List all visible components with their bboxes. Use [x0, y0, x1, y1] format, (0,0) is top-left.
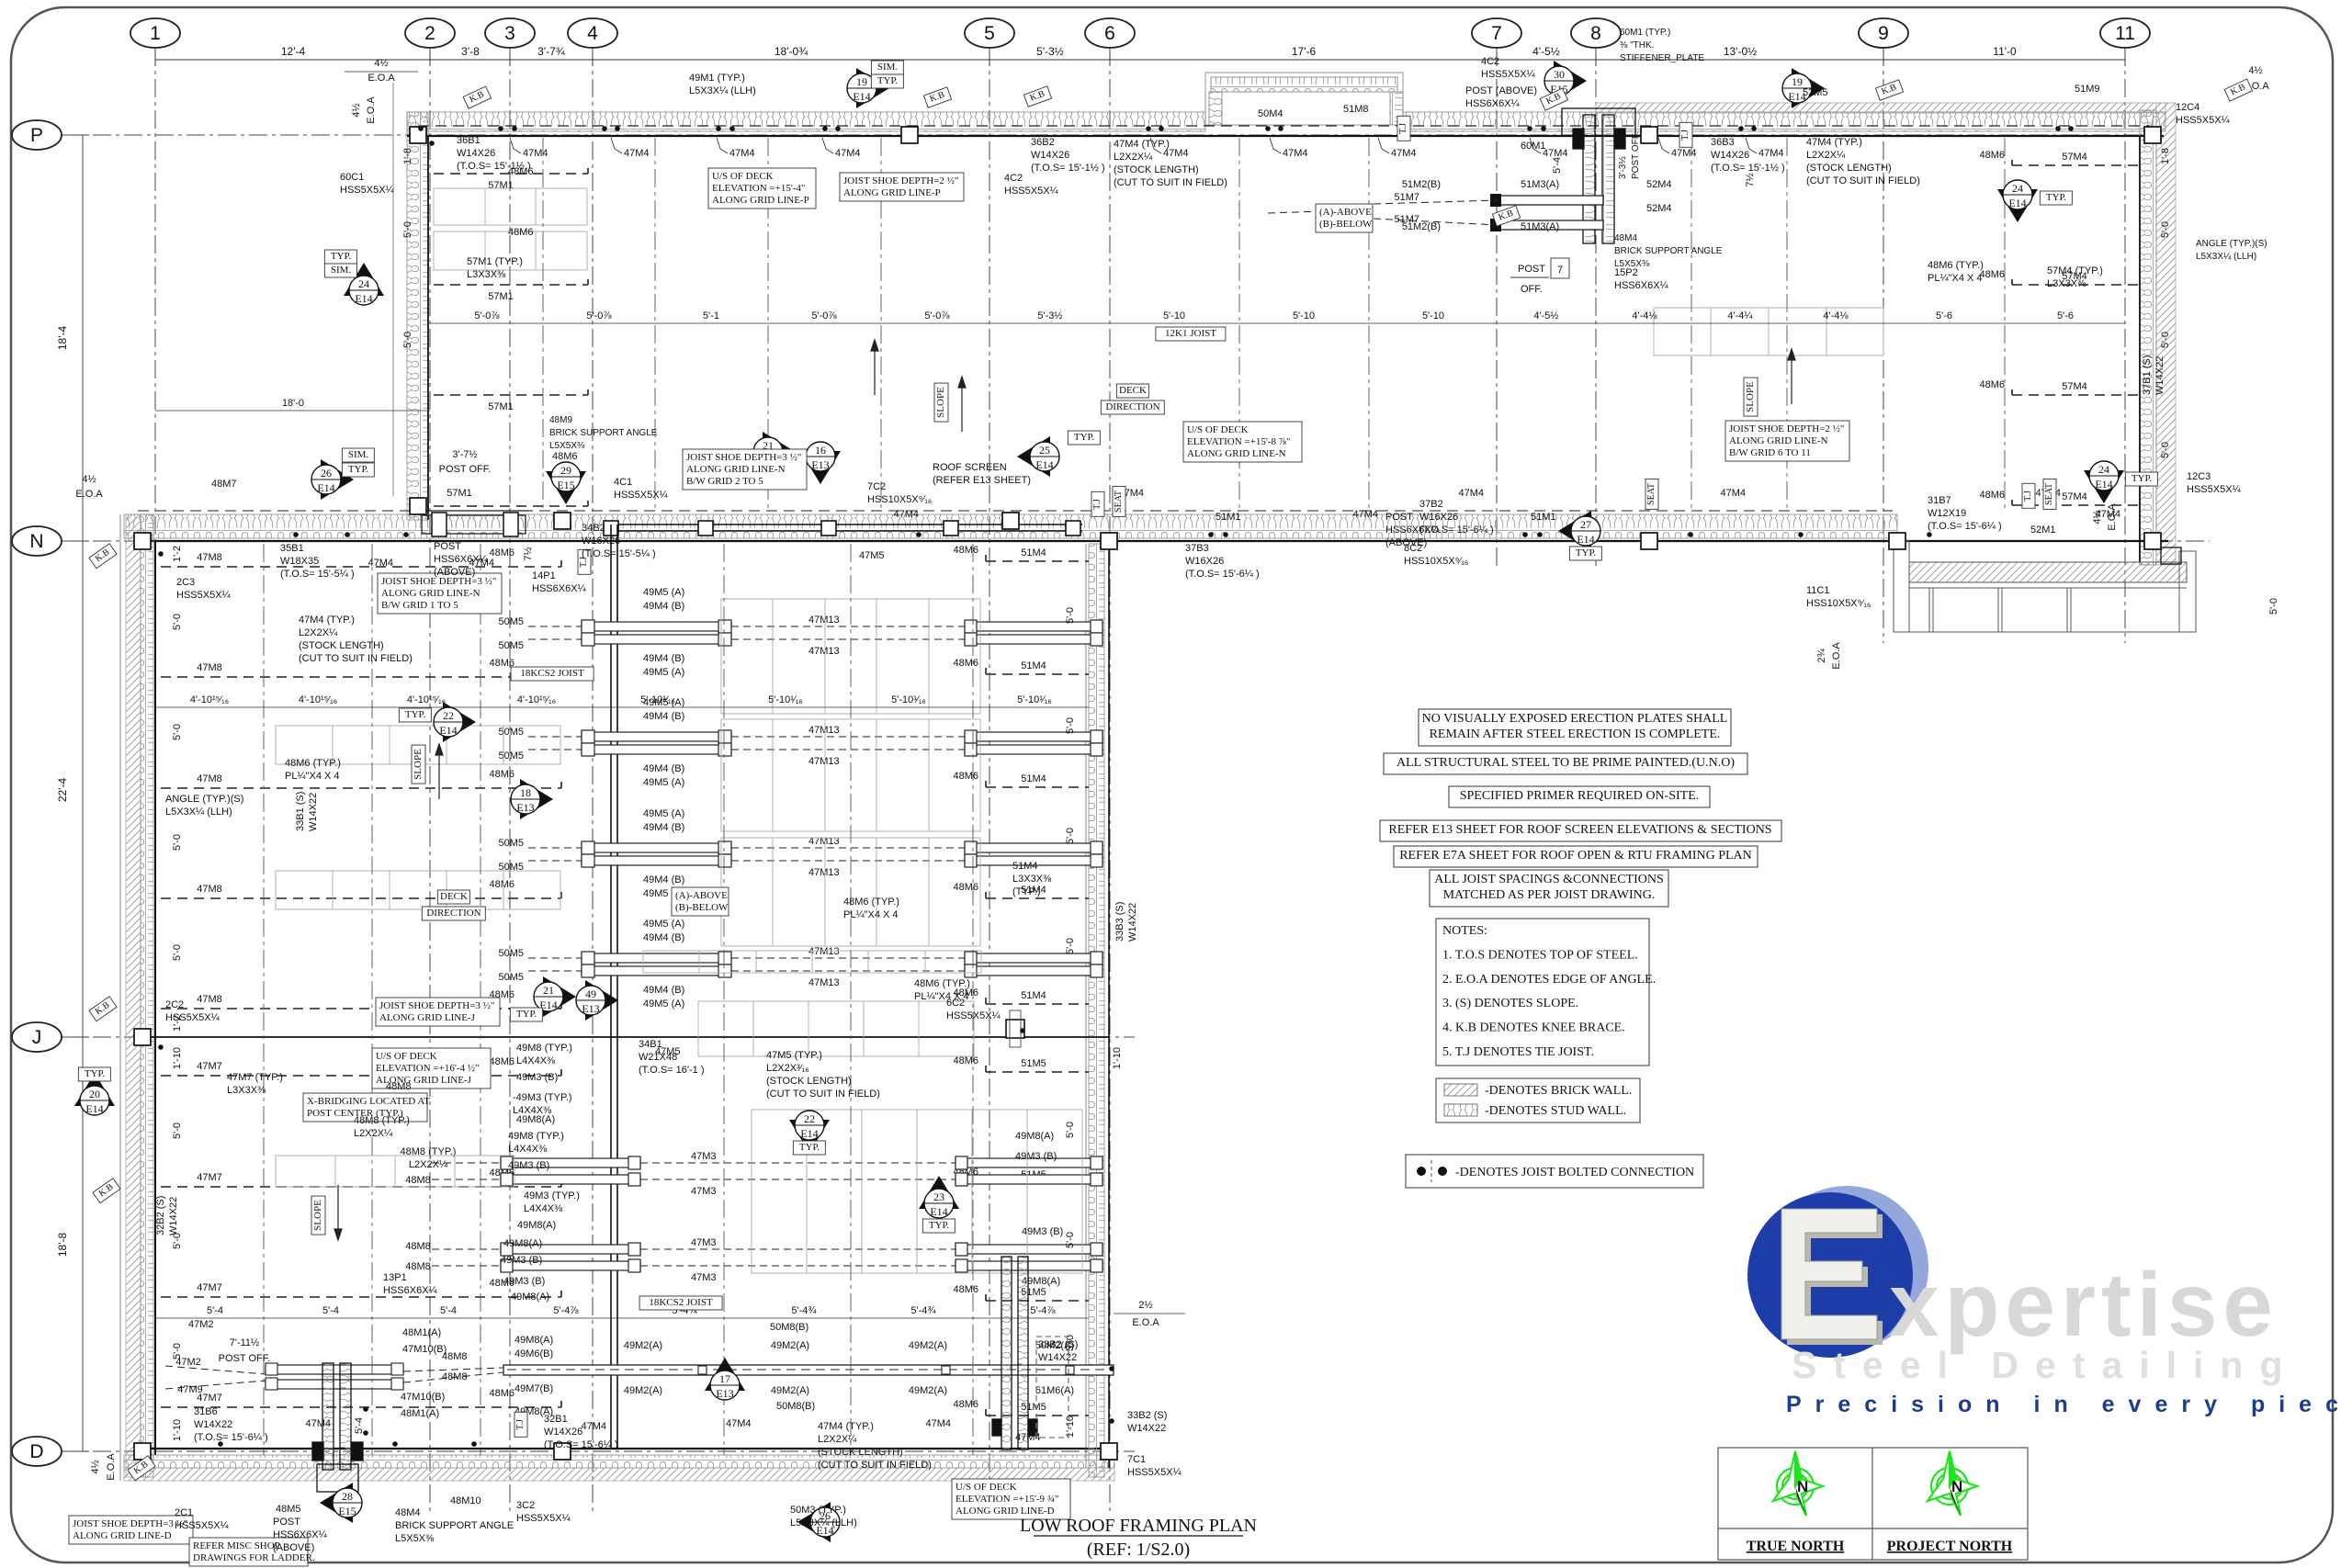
svg-text:57M1: 57M1 — [488, 180, 514, 191]
svg-text:(T.O.S= 15'-6¼ ): (T.O.S= 15'-6¼ ) — [194, 1432, 268, 1443]
svg-text:5'-0: 5'-0 — [1065, 607, 1076, 624]
svg-text:47M4: 47M4 — [1671, 148, 1697, 159]
svg-text:50M5: 50M5 — [498, 750, 524, 761]
svg-text:4C2: 4C2 — [1481, 56, 1499, 67]
svg-text:15P2: 15P2 — [1614, 267, 1638, 278]
svg-text:ALONG GRID LINE-N: ALONG GRID LINE-N — [1729, 435, 1828, 446]
svg-text:4½: 4½ — [374, 58, 388, 69]
svg-text:48M6: 48M6 — [953, 658, 978, 669]
svg-text:18'-8: 18'-8 — [56, 1233, 69, 1258]
svg-text:E14: E14 — [317, 481, 334, 494]
svg-text:47M4: 47M4 — [367, 558, 393, 569]
svg-text:HSS6X6X¼: HSS6X6X¼ — [383, 1285, 438, 1296]
svg-text:48M6: 48M6 — [508, 227, 534, 238]
svg-text:25: 25 — [1039, 444, 1050, 457]
svg-text:DECK: DECK — [1119, 385, 1147, 396]
svg-text:D: D — [29, 1441, 43, 1462]
svg-text:L2X2X³⁄₁₆: L2X2X³⁄₁₆ — [766, 1063, 809, 1074]
svg-text:POST: POST — [1518, 264, 1545, 275]
svg-text:48M4: 48M4 — [395, 1507, 421, 1518]
svg-text:5'-1: 5'-1 — [703, 310, 719, 321]
svg-text:SIM.: SIM. — [331, 265, 352, 276]
svg-text:E13: E13 — [811, 458, 829, 471]
svg-text:W18X35: W18X35 — [280, 556, 319, 567]
svg-text:8: 8 — [1590, 23, 1601, 44]
svg-text:50M5: 50M5 — [498, 616, 524, 627]
svg-text:24: 24 — [2098, 463, 2109, 476]
svg-text:4½: 4½ — [90, 1460, 101, 1473]
svg-text:ANGLE (TYP.)(S): ANGLE (TYP.)(S) — [165, 794, 243, 805]
svg-text:NO VISUALLY EXPOSED ERECTION P: NO VISUALLY EXPOSED ERECTION PLATES SHAL… — [1422, 712, 1728, 726]
svg-text:W14X22: W14X22 — [168, 1197, 179, 1235]
svg-text:48M8: 48M8 — [405, 1175, 431, 1186]
svg-text:50M5: 50M5 — [498, 640, 524, 651]
svg-text:12C4: 12C4 — [2176, 102, 2199, 113]
svg-text:49M2(A): 49M2(A) — [771, 1385, 809, 1396]
svg-text:SEAT: SEAT — [2044, 483, 2054, 505]
svg-text:3. (S) DENOTES SLOPE.: 3. (S) DENOTES SLOPE. — [1442, 997, 1578, 1010]
svg-text:U/S OF DECK: U/S OF DECK — [1187, 424, 1249, 435]
svg-text:51M4: 51M4 — [1021, 547, 1046, 558]
svg-text:-DENOTES JOIST BOLTED CONNECTI: -DENOTES JOIST BOLTED CONNECTION — [1455, 1166, 1694, 1179]
svg-text:50M3 (TYP.): 50M3 (TYP.) — [790, 1505, 846, 1516]
svg-text:28: 28 — [342, 1490, 353, 1503]
svg-text:49M4 (B): 49M4 (B) — [643, 763, 684, 774]
svg-text:5'-0: 5'-0 — [402, 332, 413, 348]
svg-text:T.J: T.J — [515, 1419, 526, 1430]
svg-text:(ABOVE): (ABOVE) — [273, 1542, 314, 1553]
svg-text:LOW ROOF FRAMING PLAN: LOW ROOF FRAMING PLAN — [1020, 1516, 1257, 1536]
svg-text:W16X26: W16X26 — [582, 536, 620, 547]
svg-text:3C2: 3C2 — [516, 1500, 535, 1511]
svg-text:24: 24 — [2012, 182, 2023, 195]
svg-text:47M4: 47M4 — [925, 1418, 951, 1429]
svg-text:E14: E14 — [2095, 478, 2112, 491]
svg-text:(T.O.S= 16'-1 ): (T.O.S= 16'-1 ) — [639, 1065, 704, 1076]
svg-text:5'-0: 5'-0 — [2268, 598, 2279, 615]
svg-text:36B2: 36B2 — [1031, 137, 1055, 148]
svg-text:4'-10¹⁵⁄₁₆: 4'-10¹⁵⁄₁₆ — [190, 694, 229, 705]
svg-text:32B1: 32B1 — [544, 1414, 568, 1425]
svg-text:1'-10: 1'-10 — [172, 1419, 183, 1441]
svg-text:37B1 (S): 37B1 (S) — [2142, 355, 2153, 395]
svg-text:5'-0: 5'-0 — [172, 944, 183, 961]
svg-text:47M10(B): 47M10(B) — [402, 1344, 447, 1355]
svg-text:49M6(B): 49M6(B) — [514, 1348, 553, 1359]
svg-text:OFF.: OFF. — [1521, 284, 1543, 295]
svg-text:49M5 (A): 49M5 (A) — [643, 587, 684, 598]
svg-text:(T.O.S= 15'-6¼ ): (T.O.S= 15'-6¼ ) — [544, 1439, 618, 1450]
svg-text:(CUT TO SUIT IN FIELD): (CUT TO SUIT IN FIELD) — [1114, 177, 1227, 188]
svg-text:35B1: 35B1 — [280, 543, 304, 554]
svg-text:HSS5X5X¼: HSS5X5X¼ — [516, 1513, 571, 1524]
svg-text:REFER E7A SHEET FOR ROOF OPEN: REFER E7A SHEET FOR ROOF OPEN & RTU FRAM… — [1399, 849, 1752, 863]
svg-text:N: N — [29, 531, 43, 552]
svg-text:TYP.: TYP. — [799, 1142, 820, 1153]
svg-text:L5X3X¼ (LLH): L5X3X¼ (LLH) — [689, 85, 756, 96]
svg-text:47M7: 47M7 — [197, 1172, 222, 1183]
svg-text:49M8(A): 49M8(A) — [514, 1335, 553, 1346]
svg-text:49M3 (B): 49M3 (B) — [1015, 1151, 1057, 1162]
svg-text:E14: E14 — [930, 1205, 947, 1218]
svg-text:49M4 (B): 49M4 (B) — [643, 822, 684, 833]
svg-text:48M6: 48M6 — [489, 1056, 514, 1067]
svg-text:5'-10: 5'-10 — [1163, 310, 1185, 321]
svg-text:POST OFF.: POST OFF. — [219, 1353, 271, 1364]
svg-text:U/S OF DECK: U/S OF DECK — [712, 171, 774, 182]
svg-text:ELEVATION =+15'-8 ⅞": ELEVATION =+15'-8 ⅞" — [1187, 436, 1290, 447]
svg-text:48M6: 48M6 — [508, 166, 534, 177]
svg-text:48M6: 48M6 — [953, 1399, 978, 1410]
svg-text:5'-0: 5'-0 — [1065, 938, 1076, 954]
svg-text:E.O.A: E.O.A — [367, 73, 395, 84]
svg-text:20: 20 — [89, 1088, 100, 1100]
svg-text:HSS6X6X¼: HSS6X6X¼ — [532, 583, 587, 594]
svg-text:57M4: 57M4 — [2062, 491, 2087, 502]
svg-text:L4X4X⅜: L4X4X⅜ — [524, 1203, 563, 1214]
svg-text:W16X26: W16X26 — [1185, 556, 1224, 567]
svg-text:TYP.: TYP. — [2131, 473, 2153, 484]
svg-text:4: 4 — [587, 23, 598, 44]
svg-text:5'-6: 5'-6 — [1936, 310, 1952, 321]
svg-text:52M1: 52M1 — [2030, 525, 2056, 536]
svg-text:1'-2: 1'-2 — [172, 546, 183, 562]
svg-text:49M8 (TYP.): 49M8 (TYP.) — [508, 1131, 564, 1142]
svg-text:(STOCK LENGTH): (STOCK LENGTH) — [299, 640, 384, 651]
svg-text:48M6: 48M6 — [953, 882, 978, 893]
svg-text:TYP.: TYP. — [877, 75, 899, 86]
svg-text:49M5 (A): 49M5 (A) — [643, 919, 684, 930]
svg-text:SLOPE: SLOPE — [935, 387, 946, 418]
svg-text:18: 18 — [520, 786, 531, 799]
svg-text:14P1: 14P1 — [532, 570, 556, 581]
svg-text:51M2(B): 51M2(B) — [1402, 221, 1441, 232]
svg-text:HSS5X5X¼: HSS5X5X¼ — [2187, 484, 2242, 495]
svg-text:E.O.A: E.O.A — [366, 96, 377, 124]
svg-text:47M13: 47M13 — [808, 977, 840, 988]
svg-text:JOIST SHOE DEPTH=3 ½": JOIST SHOE DEPTH=3 ½" — [686, 452, 801, 463]
svg-text:Precision in every piece: Precision in every piece — [1786, 1392, 2352, 1417]
svg-text:51M7: 51M7 — [1394, 192, 1419, 203]
svg-text:47M2: 47M2 — [188, 1319, 214, 1330]
svg-text:HSS5X5X¼: HSS5X5X¼ — [1127, 1467, 1182, 1478]
svg-text:DIRECTION: DIRECTION — [426, 908, 481, 919]
svg-text:47M13: 47M13 — [808, 867, 840, 878]
svg-text:11: 11 — [2115, 23, 2135, 44]
svg-text:5'-0: 5'-0 — [402, 221, 413, 238]
svg-text:⅜ "THK.: ⅜ "THK. — [1620, 40, 1654, 51]
svg-text:5'-0: 5'-0 — [172, 1122, 183, 1139]
svg-text:18'-4: 18'-4 — [56, 326, 69, 351]
svg-text:3'-7¾: 3'-7¾ — [537, 45, 566, 58]
svg-text:13'-0½: 13'-0½ — [1724, 45, 1757, 58]
svg-text:W14X26: W14X26 — [1711, 150, 1749, 161]
svg-text:ANGLE (TYP.)(S): ANGLE (TYP.)(S) — [2196, 239, 2267, 249]
svg-text:49M8(A): 49M8(A) — [517, 1220, 556, 1231]
svg-text:7C2: 7C2 — [867, 481, 886, 492]
svg-text:48M8: 48M8 — [442, 1371, 468, 1382]
svg-text:5'-0: 5'-0 — [1065, 1122, 1076, 1138]
svg-text:51M4: 51M4 — [1021, 773, 1046, 784]
svg-text:L5X3X¼ (LLH): L5X3X¼ (LLH) — [2196, 251, 2256, 262]
svg-text:57M1: 57M1 — [488, 291, 514, 302]
svg-text:22: 22 — [804, 1112, 815, 1125]
svg-text:2¾: 2¾ — [1816, 649, 1827, 663]
svg-text:E.O.A: E.O.A — [106, 1453, 117, 1481]
svg-text:ALL STRUCTURAL STEEL TO BE PRI: ALL STRUCTURAL STEEL TO BE PRIME PAINTED… — [1396, 756, 1735, 770]
svg-text:W14X22: W14X22 — [2154, 356, 2165, 395]
svg-text:ELEVATION =+15'-9 ¾": ELEVATION =+15'-9 ¾" — [955, 1494, 1058, 1505]
svg-text:TYP.: TYP. — [85, 1068, 106, 1079]
svg-text:W14X26: W14X26 — [1031, 150, 1069, 161]
svg-text:5'-10¹⁄₁₆: 5'-10¹⁄₁₆ — [1017, 694, 1052, 705]
svg-text:5: 5 — [984, 23, 995, 44]
svg-text:4'-4⅛: 4'-4⅛ — [1632, 310, 1657, 321]
svg-text:SLOPE: SLOPE — [413, 749, 424, 780]
svg-text:49M3 (B): 49M3 (B) — [503, 1276, 545, 1287]
svg-text:(REFER E13 SHEET): (REFER E13 SHEET) — [933, 475, 1031, 486]
svg-text:HSS5X5X¼: HSS5X5X¼ — [1481, 69, 1536, 80]
svg-text:50M5: 50M5 — [498, 948, 524, 959]
svg-text:49M3 (B): 49M3 (B) — [1022, 1226, 1063, 1237]
svg-text:49M2(A): 49M2(A) — [909, 1385, 947, 1396]
svg-text:4½: 4½ — [2248, 65, 2262, 76]
svg-text:47M4: 47M4 — [305, 1418, 331, 1429]
svg-text:47M3: 47M3 — [691, 1151, 717, 1162]
svg-text:47M5: 47M5 — [859, 550, 885, 561]
svg-text:12C3: 12C3 — [2187, 471, 2211, 482]
svg-text:51M9: 51M9 — [2075, 84, 2100, 95]
svg-text:(B)-BELOW: (B)-BELOW — [675, 902, 729, 913]
svg-text:E15: E15 — [338, 1505, 356, 1517]
svg-text:2C2: 2C2 — [165, 999, 184, 1010]
svg-text:48M8: 48M8 — [405, 1241, 431, 1252]
svg-text:48M9: 48M9 — [549, 415, 572, 425]
svg-text:57M1 (TYP.): 57M1 (TYP.) — [467, 256, 523, 267]
svg-text:47M4: 47M4 — [581, 1421, 606, 1432]
svg-text:(STOCK LENGTH): (STOCK LENGTH) — [818, 1447, 903, 1458]
svg-text:SPECIFIED PRIMER REQUIRED ON-S: SPECIFIED PRIMER REQUIRED ON-SITE. — [1460, 789, 1700, 803]
svg-text:47M4 (TYP.): 47M4 (TYP.) — [299, 615, 355, 626]
svg-text:47M4: 47M4 — [1283, 148, 1308, 159]
svg-text:(T.O.S= 15'-1½ ): (T.O.S= 15'-1½ ) — [1711, 163, 1785, 174]
svg-text:TYP.: TYP. — [929, 1220, 950, 1231]
svg-text:47M4: 47M4 — [893, 509, 919, 520]
svg-text:4'-5½: 4'-5½ — [1532, 45, 1560, 58]
svg-text:HSS6X6X¼: HSS6X6X¼ — [434, 554, 489, 565]
svg-text:HSS5X5X¼: HSS5X5X¼ — [165, 1012, 220, 1023]
svg-text:(STOCK LENGTH): (STOCK LENGTH) — [1806, 163, 1892, 174]
svg-text:TYP.: TYP. — [2046, 192, 2067, 203]
svg-text:L5X3X¼ (LLH): L5X3X¼ (LLH) — [165, 807, 232, 818]
svg-text:51M4: 51M4 — [1021, 660, 1046, 671]
svg-text:51M1: 51M1 — [1531, 512, 1556, 523]
svg-text:HSS5X5X¼: HSS5X5X¼ — [2176, 115, 2231, 126]
svg-text:4'-4⅛: 4'-4⅛ — [1823, 310, 1849, 321]
svg-text:B/W GRID 1 TO 5: B/W GRID 1 TO 5 — [381, 600, 458, 611]
svg-text:47M7 (TYP.): 47M7 (TYP.) — [227, 1072, 283, 1083]
svg-text:POST (ABOVE): POST (ABOVE) — [1465, 85, 1537, 96]
svg-text:W16X26: W16X26 — [1419, 512, 1458, 523]
svg-text:B/W GRID 2 TO 5: B/W GRID 2 TO 5 — [686, 476, 763, 487]
svg-text:50M8(B): 50M8(B) — [770, 1322, 808, 1333]
svg-text:47M9: 47M9 — [177, 1384, 203, 1395]
svg-text:POST OFF.: POST OFF. — [439, 464, 492, 475]
svg-text:50M5: 50M5 — [498, 838, 524, 849]
svg-text:49M2(A): 49M2(A) — [909, 1340, 947, 1351]
svg-text:(ABOVE): (ABOVE) — [434, 567, 475, 578]
svg-text:47M8: 47M8 — [197, 552, 222, 563]
svg-text:5'-0: 5'-0 — [1065, 717, 1076, 734]
svg-text:57M4: 57M4 — [2062, 152, 2087, 163]
svg-text:HSS6X6X¼: HSS6X6X¼ — [273, 1529, 328, 1540]
svg-text:49M3 (TYP.): 49M3 (TYP.) — [524, 1190, 580, 1201]
svg-text:-DENOTES BRICK WALL.: -DENOTES BRICK WALL. — [1485, 1084, 1632, 1098]
svg-text:DRAWINGS FOR LADDER.: DRAWINGS FOR LADDER. — [193, 1552, 315, 1563]
svg-text:12K1 JOIST: 12K1 JOIST — [1165, 328, 1216, 339]
svg-text:(CUT TO SUIT IN FIELD): (CUT TO SUIT IN FIELD) — [818, 1460, 932, 1471]
svg-text:L2X2X¼: L2X2X¼ — [299, 627, 338, 638]
svg-text:48M6: 48M6 — [489, 1388, 514, 1399]
svg-text:5'-4: 5'-4 — [440, 1305, 457, 1316]
svg-text:51M1: 51M1 — [1216, 512, 1241, 523]
svg-text:ALONG GRID LINE-N: ALONG GRID LINE-N — [1187, 448, 1286, 459]
svg-text:5'-0: 5'-0 — [2160, 221, 2171, 238]
svg-text:33B1 (S): 33B1 (S) — [295, 792, 306, 831]
svg-text:E.O.A: E.O.A — [1132, 1317, 1159, 1328]
svg-text:N: N — [1797, 1478, 1808, 1495]
svg-text:36B3: 36B3 — [1711, 137, 1735, 148]
svg-text:18KCS2 JOIST: 18KCS2 JOIST — [649, 1297, 713, 1308]
svg-text:47M13: 47M13 — [808, 725, 840, 736]
svg-text:48M6: 48M6 — [953, 1284, 978, 1295]
svg-text:STIFFENER_PLATE: STIFFENER_PLATE — [1620, 53, 1704, 63]
svg-text:(ABOVE): (ABOVE) — [1385, 537, 1427, 548]
svg-text:E13: E13 — [516, 801, 534, 814]
svg-text:31B7: 31B7 — [1928, 495, 1951, 506]
svg-text:47M5 (TYP.): 47M5 (TYP.) — [766, 1050, 822, 1061]
svg-text:(T.O.S= 15'-5¼ ): (T.O.S= 15'-5¼ ) — [582, 548, 656, 559]
svg-text:PROJECT NORTH: PROJECT NORTH — [1887, 1539, 2013, 1554]
svg-text:31B6: 31B6 — [194, 1406, 218, 1417]
svg-text:52M4: 52M4 — [1646, 179, 1672, 190]
svg-text:48M10: 48M10 — [450, 1495, 481, 1506]
svg-text:T.J: T.J — [2023, 491, 2033, 502]
svg-text:50M8(B): 50M8(B) — [776, 1401, 815, 1412]
svg-text:POST: POST — [1385, 512, 1413, 523]
svg-text:7: 7 — [1557, 265, 1563, 276]
svg-text:5'-0: 5'-0 — [1065, 1232, 1076, 1248]
svg-text:48M6: 48M6 — [953, 545, 978, 556]
svg-text:L4X4X⅜: L4X4X⅜ — [516, 1055, 556, 1066]
svg-text:5'-0⅞: 5'-0⅞ — [474, 310, 500, 321]
svg-text:47M3: 47M3 — [691, 1272, 717, 1283]
svg-text:L3X3X⅜: L3X3X⅜ — [1012, 874, 1052, 885]
svg-text:48M6 (TYP.): 48M6 (TYP.) — [914, 978, 970, 989]
svg-text:48M5: 48M5 — [276, 1504, 301, 1515]
svg-text:34B2: 34B2 — [582, 523, 605, 534]
svg-text:4. K.B DENOTES KNEE BRACE.: 4. K.B DENOTES KNEE BRACE. — [1442, 1021, 1625, 1035]
svg-text:(TYP.): (TYP.) — [1012, 886, 1040, 897]
svg-text:ALL JOIST SPACINGS &CONNECTION: ALL JOIST SPACINGS &CONNECTIONS — [1434, 873, 1664, 886]
svg-text:xpertise: xpertise — [1889, 1254, 2278, 1355]
svg-text:22: 22 — [443, 709, 454, 722]
svg-text:E14: E14 — [800, 1127, 818, 1140]
svg-text:W12X19: W12X19 — [1928, 508, 1966, 519]
svg-text:W14X22: W14X22 — [1127, 1423, 1166, 1434]
svg-text:52M5: 52M5 — [1803, 87, 1828, 98]
svg-text:5'-0: 5'-0 — [172, 614, 183, 630]
svg-text:5'-10¹⁄₁₆: 5'-10¹⁄₁₆ — [640, 694, 675, 705]
svg-text:57M1: 57M1 — [447, 488, 472, 499]
svg-text:49M4 (B): 49M4 (B) — [643, 601, 684, 612]
svg-text:W14X26: W14X26 — [544, 1427, 582, 1438]
svg-text:5'-0: 5'-0 — [1065, 828, 1076, 844]
svg-text:57M4 (TYP.): 57M4 (TYP.) — [2047, 265, 2103, 276]
svg-text:19: 19 — [1792, 75, 1803, 88]
svg-text:47M3: 47M3 — [691, 1237, 717, 1248]
svg-text:4'-4¼: 4'-4¼ — [1727, 310, 1753, 321]
svg-text:5'-4¾: 5'-4¾ — [791, 1305, 817, 1316]
svg-text:ALONG GRID LINE-N: ALONG GRID LINE-N — [381, 588, 481, 599]
svg-text:7: 7 — [1491, 23, 1502, 44]
svg-text:47M4: 47M4 — [2095, 509, 2120, 520]
svg-text:51M3(A): 51M3(A) — [1521, 221, 1559, 232]
svg-text:18'-0¾: 18'-0¾ — [775, 45, 808, 58]
svg-text:50M5: 50M5 — [498, 727, 524, 738]
svg-text:7C1: 7C1 — [1127, 1454, 1146, 1465]
svg-text:B/W GRID 6 TO 11: B/W GRID 6 TO 11 — [1729, 447, 1811, 458]
svg-text:PL¼"X4 X 4: PL¼"X4 X 4 — [843, 909, 899, 920]
svg-text:TYP.: TYP. — [405, 709, 426, 720]
svg-text:49M4 (B): 49M4 (B) — [643, 932, 684, 943]
svg-text:48M4: 48M4 — [1614, 233, 1637, 243]
svg-text:2: 2 — [424, 23, 435, 44]
svg-text:1. T.O.S DENOTES TOP OF STEEL.: 1. T.O.S DENOTES TOP OF STEEL. — [1442, 948, 1638, 962]
svg-text:47M4: 47M4 — [1720, 488, 1746, 499]
svg-text:(T.O.S= 15'-6¼ ): (T.O.S= 15'-6¼ ) — [1185, 569, 1260, 580]
svg-text:5'-0: 5'-0 — [172, 834, 183, 851]
svg-text:TRUE NORTH: TRUE NORTH — [1747, 1539, 1845, 1554]
svg-text:7½: 7½ — [523, 547, 534, 560]
svg-text:48M1(A): 48M1(A) — [401, 1408, 439, 1419]
svg-text:49M3 (B): 49M3 (B) — [516, 1072, 558, 1083]
svg-text:SEAT: SEAT — [1114, 491, 1124, 513]
svg-text:47M4 (TYP.): 47M4 (TYP.) — [818, 1421, 874, 1432]
svg-text:4½: 4½ — [351, 103, 362, 117]
svg-text:52M4: 52M4 — [1646, 203, 1672, 214]
svg-text:49: 49 — [585, 987, 596, 1000]
svg-text:49M2(A): 49M2(A) — [771, 1340, 809, 1351]
svg-text:36B1: 36B1 — [457, 135, 481, 146]
svg-text:REMAIN AFTER STEEL ERECTION IS: REMAIN AFTER STEEL ERECTION IS COMPLETE. — [1430, 728, 1721, 741]
svg-text:3'-8: 3'-8 — [461, 45, 480, 58]
svg-text:17'-6: 17'-6 — [1292, 45, 1317, 58]
svg-text:L4X4X⅜: L4X4X⅜ — [508, 1144, 548, 1155]
svg-text:E14: E14 — [439, 724, 457, 737]
svg-text:E14: E14 — [2008, 197, 2026, 209]
svg-text:1'-8: 1'-8 — [2160, 148, 2171, 164]
svg-text:HSS5X5X¼: HSS5X5X¼ — [175, 1520, 230, 1531]
svg-text:3'-3½: 3'-3½ — [1618, 156, 1628, 179]
svg-text:19: 19 — [856, 75, 867, 88]
svg-text:49M8 (TYP.): 49M8 (TYP.) — [516, 1043, 572, 1054]
svg-text:REFER MISC SHOP: REFER MISC SHOP — [193, 1540, 280, 1551]
svg-text:2C3: 2C3 — [176, 577, 195, 588]
svg-text:5'-0⅞: 5'-0⅞ — [924, 310, 950, 321]
svg-text:5'-4: 5'-4 — [207, 1305, 223, 1316]
svg-text:33B2 (S): 33B2 (S) — [1038, 1339, 1078, 1350]
